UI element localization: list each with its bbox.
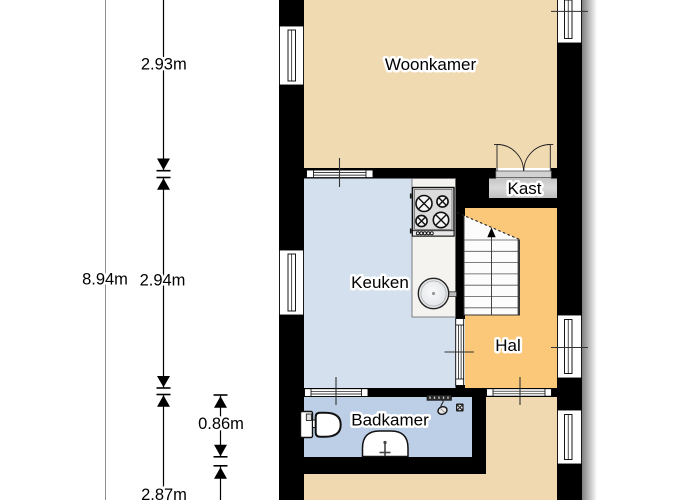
svg-text:0.86m: 0.86m	[198, 415, 244, 433]
svg-text:2.93m: 2.93m	[141, 55, 187, 73]
svg-text:Keuken: Keuken	[351, 273, 409, 292]
svg-text:Woonkamer: Woonkamer	[385, 55, 477, 74]
svg-text:2.87m: 2.87m	[141, 486, 187, 500]
svg-text:Badkamer: Badkamer	[351, 410, 429, 429]
svg-text:Kast: Kast	[507, 179, 541, 198]
svg-text:Hal: Hal	[495, 336, 521, 355]
svg-text:8.94m: 8.94m	[82, 271, 128, 289]
svg-text:2.94m: 2.94m	[140, 272, 186, 290]
